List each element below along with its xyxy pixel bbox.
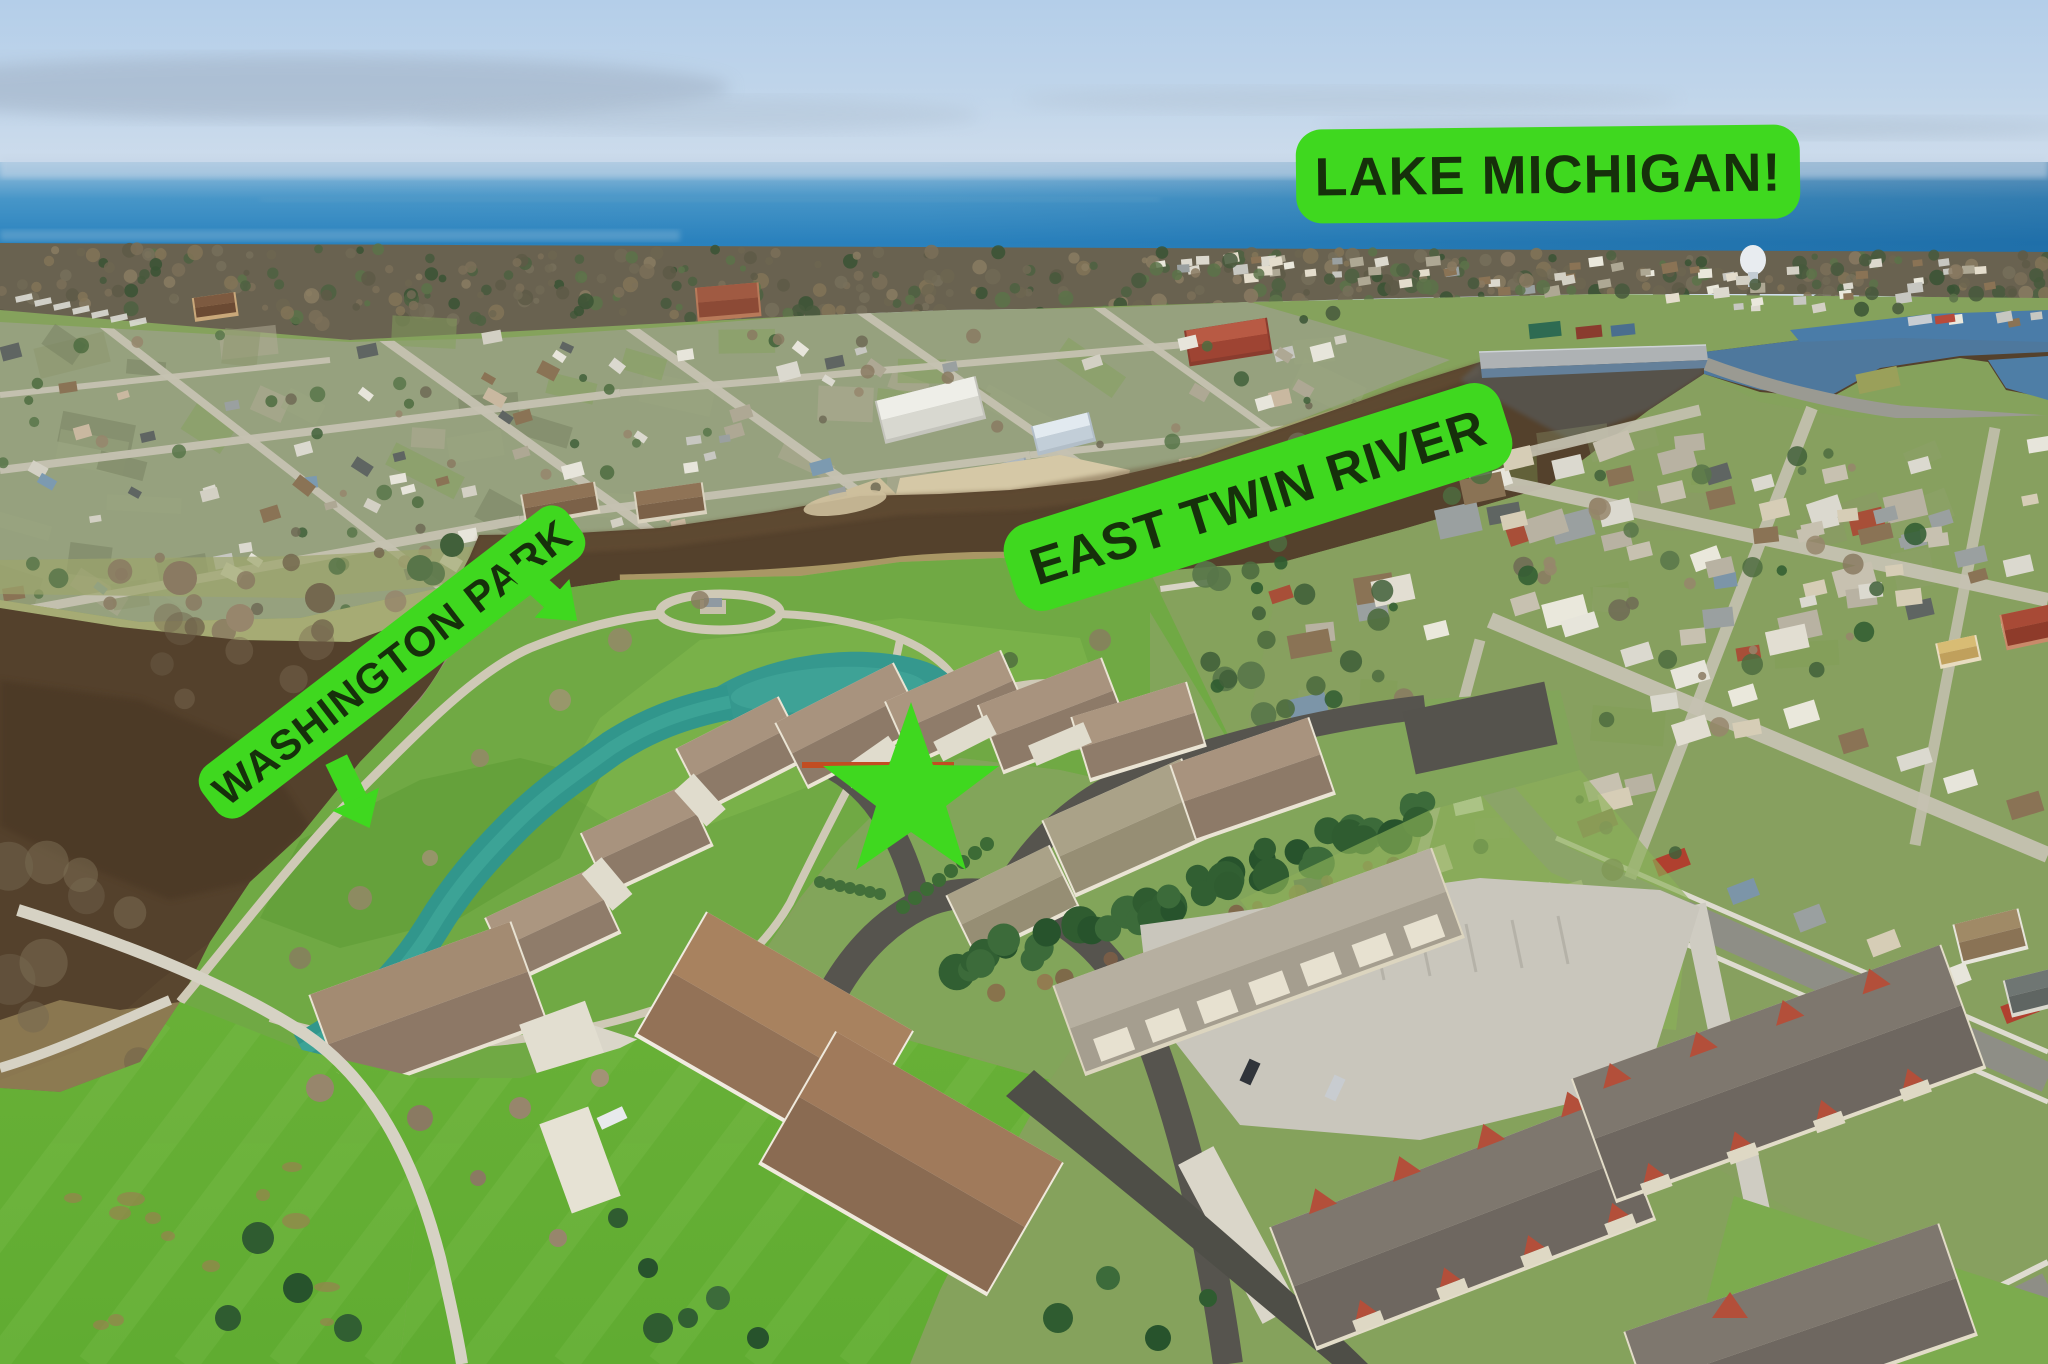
svg-text:LAKE MICHIGAN!: LAKE MICHIGAN! [1314, 143, 1782, 208]
